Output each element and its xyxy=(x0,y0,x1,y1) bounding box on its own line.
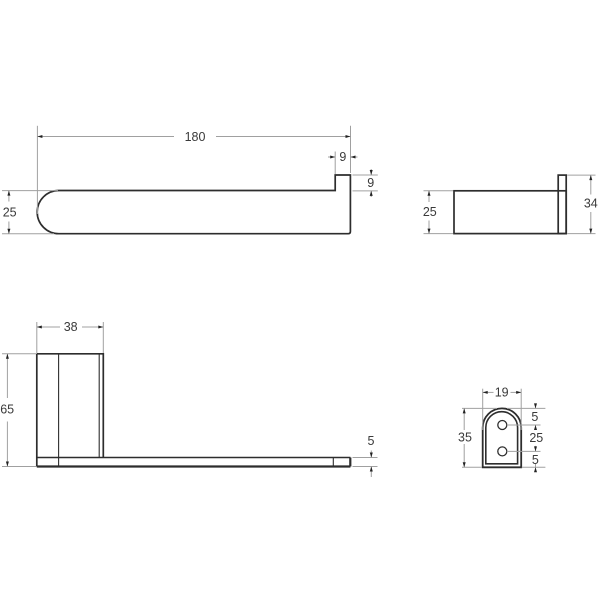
svg-text:5: 5 xyxy=(368,434,375,448)
svg-text:38: 38 xyxy=(64,320,78,334)
svg-text:9: 9 xyxy=(339,150,346,164)
svg-text:65: 65 xyxy=(0,402,14,416)
svg-text:9: 9 xyxy=(367,176,374,190)
svg-text:5: 5 xyxy=(531,410,538,424)
svg-text:35: 35 xyxy=(458,430,472,444)
svg-text:25: 25 xyxy=(529,431,543,445)
svg-text:25: 25 xyxy=(3,205,17,219)
svg-text:5: 5 xyxy=(532,453,539,467)
svg-text:34: 34 xyxy=(584,196,598,210)
svg-text:180: 180 xyxy=(185,130,206,144)
svg-text:19: 19 xyxy=(495,386,509,400)
svg-text:25: 25 xyxy=(423,205,437,219)
